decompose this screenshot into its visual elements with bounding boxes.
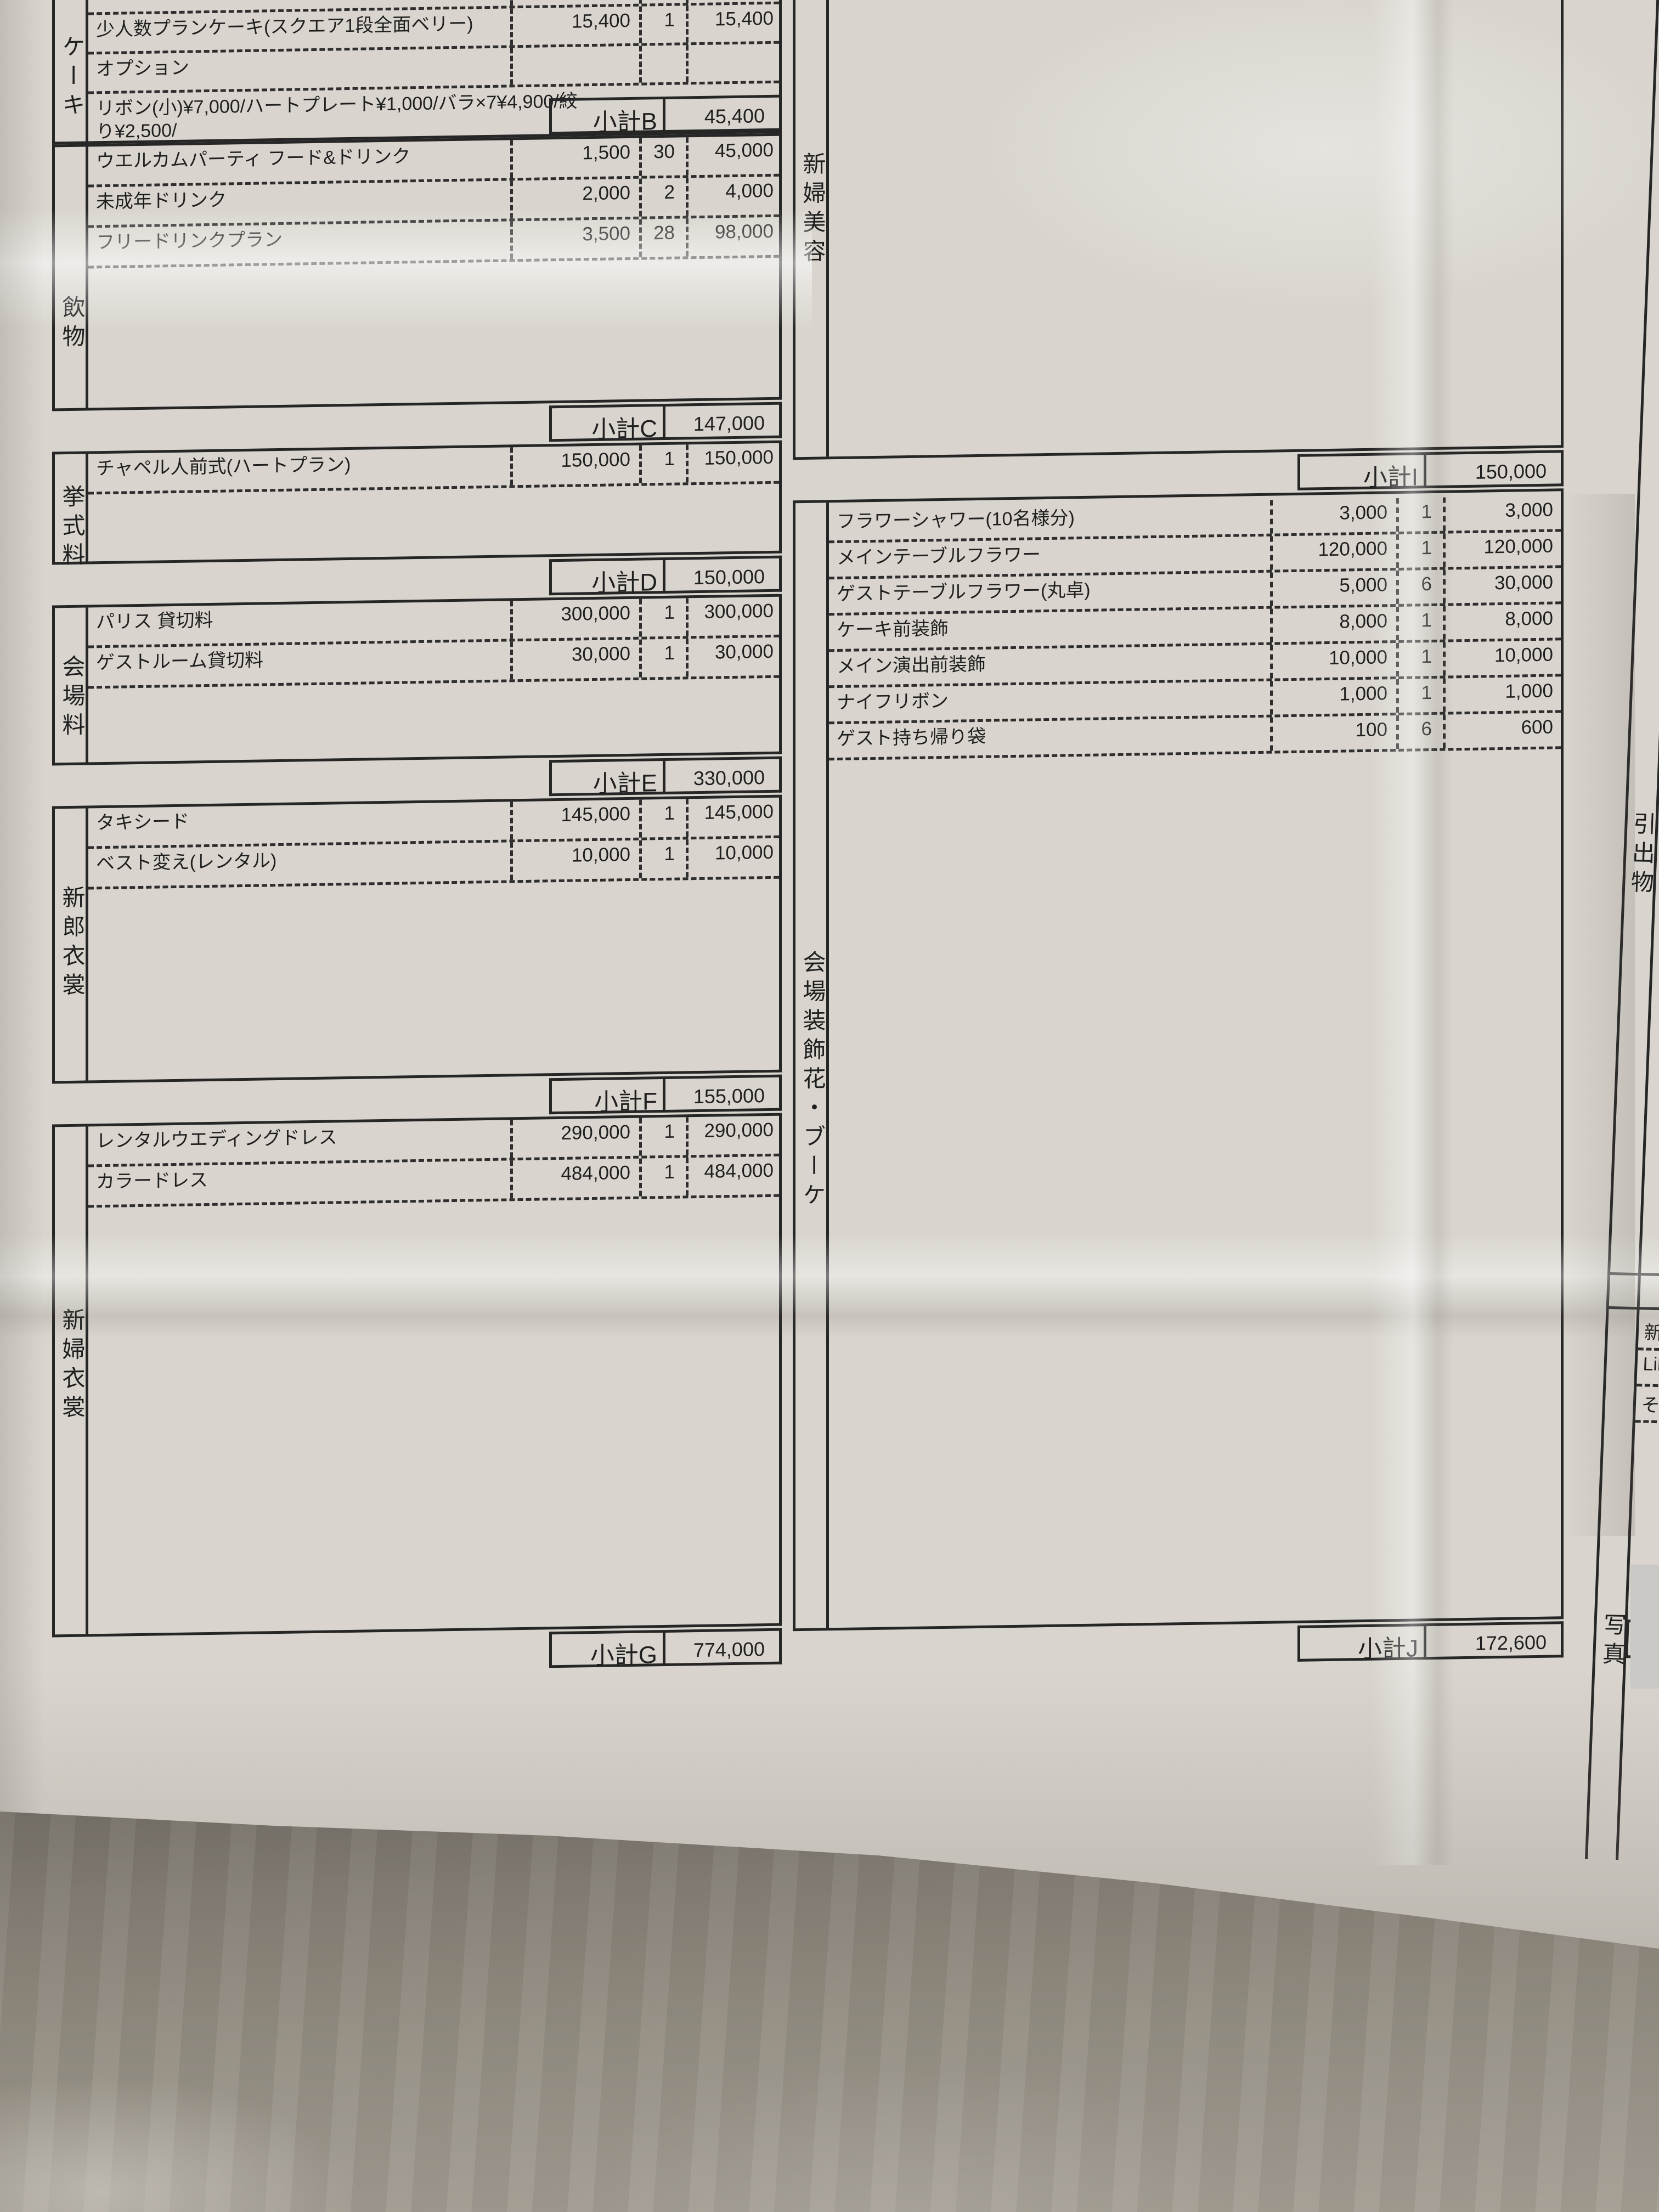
item-name: タキシード xyxy=(88,802,510,846)
subtotal-label: 小計G xyxy=(549,1630,665,1668)
item-qty: 1 xyxy=(1396,498,1443,532)
item-qty: 1 xyxy=(639,839,686,878)
section-rows: ウエルカムパーティ フード&ドリンク 1,500 30 45,000 未成年ドリ… xyxy=(88,136,779,408)
item-amount: 10,000 xyxy=(1443,640,1561,675)
item-name: ケーキ前装飾 xyxy=(829,609,1270,650)
gray-redaction-patch xyxy=(1630,1565,1659,1689)
table-row: Libre xyxy=(1637,1350,1659,1389)
item-qty: 1 xyxy=(639,5,686,43)
item-amount: 30,000 xyxy=(686,637,779,677)
section-groom-attire: 新郎衣裳 タキシード 145,000 1 145,000 ベスト変え(レンタル)… xyxy=(52,795,782,1084)
section-label-col: 飲物 xyxy=(55,146,88,408)
section-bride-beauty: 新婦美容 xyxy=(793,0,1564,460)
item-qty: 1 xyxy=(1396,679,1443,713)
item-qty: 1 xyxy=(1396,534,1443,568)
item-amount: 145,000 xyxy=(686,798,779,837)
section-bride-attire: 新婦衣裳 レンタルウエディングドレス 290,000 1 290,000 カラー… xyxy=(52,1113,782,1638)
item-price xyxy=(510,46,639,85)
edge-section-divider xyxy=(1606,1306,1659,1312)
subtotal-amount: 150,000 xyxy=(665,556,782,594)
subtotal-amount: 172,600 xyxy=(1426,1621,1564,1660)
item-amount xyxy=(686,0,779,3)
item-qty: 1 xyxy=(1396,642,1443,676)
item-qty: 1 xyxy=(639,799,686,837)
edge-section-divider xyxy=(1607,1272,1659,1278)
section-venue: 会場料 パリス 貸切料 300,000 1 300,000 ゲストルーム貸切料 … xyxy=(52,594,782,766)
section-label-col: 新婦衣裳 xyxy=(55,1126,88,1634)
item-qty: 2 xyxy=(639,178,686,216)
item-amount: 8,000 xyxy=(1443,604,1561,639)
section-label-hikidemono: 引出物 xyxy=(1623,811,1659,899)
item-price: 100 xyxy=(1270,715,1396,751)
item-amount: 484,000 xyxy=(686,1156,779,1196)
subtotal-amount: 147,000 xyxy=(665,402,782,440)
item-amount: 3,000 xyxy=(1443,495,1561,531)
item-name: オプション xyxy=(88,48,510,91)
item-amount: 98,000 xyxy=(686,217,779,257)
item-qty: 30 xyxy=(639,137,686,176)
item-price: 30,000 xyxy=(510,640,639,680)
item-qty: 1 xyxy=(639,639,686,677)
item-amount: 600 xyxy=(1443,713,1561,748)
item-name: ウエルカムパーティ フード&ドリンク xyxy=(88,140,510,184)
subtotal-amount: 45,400 xyxy=(665,95,782,133)
item-qty: 1 xyxy=(1396,606,1443,640)
item-amount: 10,000 xyxy=(686,838,779,878)
section-label-drinks: 飲物 xyxy=(55,295,89,353)
subtotal-amount: 774,000 xyxy=(665,1628,782,1666)
subtotal-label: 小計B xyxy=(549,97,665,134)
item-qty xyxy=(639,0,686,4)
item-qty: 28 xyxy=(639,218,686,257)
section-decor-flowers: 会場装飾花・ブーケ フラワーシャワー(10名様分) 3,000 1 3,000 … xyxy=(793,488,1564,1631)
section-label-col: 新郎衣裳 xyxy=(55,808,88,1081)
item-price: 3,000 xyxy=(1270,498,1396,534)
section-label-bride-attire: 新婦衣裳 xyxy=(55,1307,89,1424)
section-label-cake: ケーキ xyxy=(55,34,89,122)
section-rows xyxy=(829,0,1561,456)
subtotal-label: 小計F xyxy=(549,1076,665,1114)
section-label-col: 新婦美容 xyxy=(795,0,829,457)
item-price: 30,000 xyxy=(510,0,639,5)
item-name: ベスト変え(レンタル) xyxy=(88,842,510,887)
item-qty xyxy=(639,45,686,82)
subtotal-amount: 150,000 xyxy=(1426,450,1564,488)
subtotal-label: 小計E xyxy=(549,758,665,796)
table-row: その xyxy=(1635,1386,1659,1425)
section-label-col: ケーキ xyxy=(55,0,88,142)
section-label-groom-attire: 新郎衣裳 xyxy=(55,885,89,1002)
item-price: 3,500 xyxy=(510,219,639,259)
subtotal-amount: 330,000 xyxy=(665,757,782,794)
item-name: フラワーシャワー(10名様分) xyxy=(829,500,1270,541)
section-label-col: 挙式料 xyxy=(55,454,88,562)
item-amount: 290,000 xyxy=(686,1116,779,1155)
right-estimate-table: 新婦美容 小計I 150,000 会場装飾花・ブーケ フラ xyxy=(793,0,1564,1672)
item-price: 300,000 xyxy=(510,599,639,639)
section-label-ceremony: 挙式料 xyxy=(55,484,89,572)
item-price: 2,000 xyxy=(510,179,639,219)
item-name: ゲスト持ち帰り袋 xyxy=(829,718,1270,758)
section-label-col: 会場料 xyxy=(55,607,88,763)
section-label-venue: 会場料 xyxy=(55,654,89,742)
item-price: 290,000 xyxy=(510,1118,639,1158)
item-name: メイン演出前装飾 xyxy=(829,645,1270,686)
item-qty: 1 xyxy=(639,1158,686,1196)
item-name: 少人数プランケーキ(スクエア1段全面ベリー) xyxy=(88,8,510,52)
item-amount: 120,000 xyxy=(1443,532,1561,567)
item-name: パリス 貸切料 xyxy=(88,601,510,645)
item-name: ゲストルーム貸切料 xyxy=(88,641,510,686)
section-rows: パリス 貸切料 300,000 1 300,000 ゲストルーム貸切料 30,0… xyxy=(88,597,779,763)
edge-rows: 新フ Libre その xyxy=(1635,1314,1659,1425)
item-name: メインテーブルフラワー xyxy=(829,537,1270,577)
sheet-content: ケーキ 30,000 少人数プランケーキ(スクエア1段全面ベリー) 15,400 xyxy=(0,0,1659,1975)
item-qty: 6 xyxy=(1396,570,1443,604)
estimate-sheet-paper: ケーキ 30,000 少人数プランケーキ(スクエア1段全面ベリー) 15,400 xyxy=(0,0,1659,1975)
item-price: 10,000 xyxy=(1270,643,1396,679)
item-price: 150,000 xyxy=(510,445,639,486)
subtotal-label: 小計C xyxy=(549,404,665,442)
table-row: 新フ xyxy=(1638,1314,1659,1353)
section-label-bride-beauty: 新婦美容 xyxy=(796,151,830,268)
section-rows: レンタルウエディングドレス 290,000 1 290,000 カラードレス 4… xyxy=(88,1116,779,1634)
item-amount: 4,000 xyxy=(686,177,779,216)
item-amount: 45,000 xyxy=(686,136,779,176)
subtotal-label: 小計J xyxy=(1297,1623,1426,1662)
left-estimate-table: ケーキ 30,000 少人数プランケーキ(スクエア1段全面ベリー) 15,400 xyxy=(52,0,782,1678)
section-rows: チャペル人前式(ハートプラン) 150,000 1 150,000 xyxy=(88,443,779,562)
item-name: フリードリンクプラン xyxy=(88,221,510,266)
item-price: 8,000 xyxy=(1270,607,1396,642)
subtotal-amount: 155,000 xyxy=(665,1075,782,1113)
item-qty: 6 xyxy=(1396,715,1443,749)
item-price: 1,000 xyxy=(1270,679,1396,715)
item-name: カラードレス xyxy=(88,1160,510,1205)
section-rows: フラワーシャワー(10名様分) 3,000 1 3,000 メインテーブルフラワ… xyxy=(829,491,1561,1628)
subtotal-label: 小計I xyxy=(1297,452,1426,490)
section-ceremony: 挙式料 チャペル人前式(ハートプラン) 150,000 1 150,000 xyxy=(52,441,782,565)
item-amount: 300,000 xyxy=(686,597,779,636)
item-amount: 15,400 xyxy=(686,4,779,43)
item-price: 5,000 xyxy=(1270,571,1396,606)
item-name: チャペル人前式(ハートプラン) xyxy=(88,447,510,492)
item-name: ナイフリボン xyxy=(829,681,1270,722)
item-qty: 1 xyxy=(639,444,686,483)
item-qty: 1 xyxy=(639,598,686,636)
item-price: 145,000 xyxy=(510,800,639,840)
item-price: 15,400 xyxy=(510,7,639,46)
item-name: レンタルウエディングドレス xyxy=(88,1120,510,1164)
section-drinks: 飲物 ウエルカムパーティ フード&ドリンク 1,500 30 45,000 未成… xyxy=(52,133,782,411)
item-name: ゲストテーブルフラワー(丸卓) xyxy=(829,573,1270,613)
item-amount: 30,000 xyxy=(1443,568,1561,603)
photo-canvas: ケーキ 30,000 少人数プランケーキ(スクエア1段全面ベリー) 15,400 xyxy=(0,0,1659,2212)
item-price: 10,000 xyxy=(510,840,639,881)
item-price: 1,500 xyxy=(510,138,639,178)
item-amount: 150,000 xyxy=(686,443,779,483)
section-label-col: 会場装飾花・ブーケ xyxy=(795,503,829,1628)
item-amount: 1,000 xyxy=(1443,676,1561,712)
item-amount xyxy=(686,44,779,82)
item-name: 未成年ドリンク xyxy=(88,180,510,225)
section-label-decor-flowers: 会場装飾花・ブーケ xyxy=(796,950,830,1212)
subtotal-label: 小計D xyxy=(549,557,665,595)
item-qty: 1 xyxy=(639,1117,686,1155)
section-rows: タキシード 145,000 1 145,000 ベスト変え(レンタル) 10,0… xyxy=(88,798,779,1081)
item-price: 120,000 xyxy=(1270,534,1396,570)
item-price: 484,000 xyxy=(510,1159,639,1199)
